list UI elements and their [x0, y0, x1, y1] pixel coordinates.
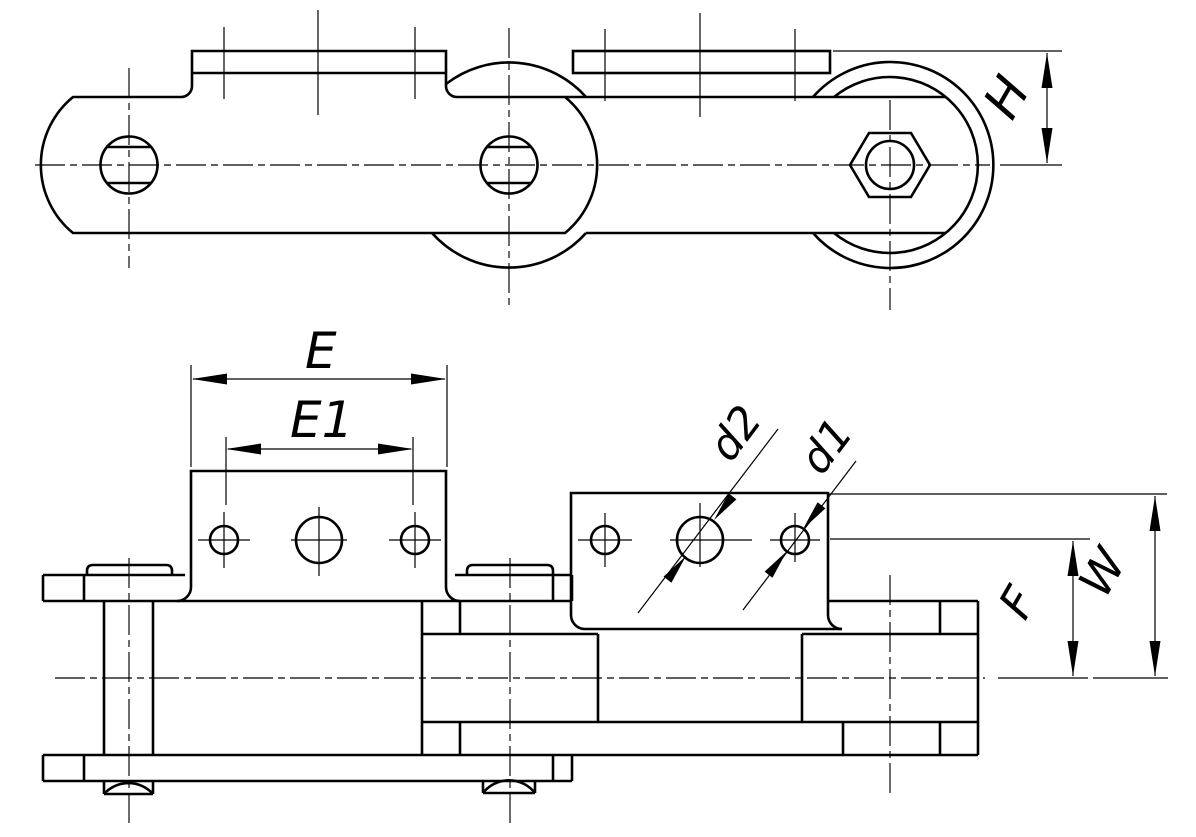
chain-plan-view: E E1 d2 [43, 322, 1168, 828]
W-arrow-down-icon [1150, 641, 1161, 676]
roller-mid-flange-top-arc [446, 62, 586, 97]
dimension-H: H [833, 51, 1062, 165]
dimension-F: F [830, 539, 1090, 678]
dim-label-F: F [988, 577, 1048, 627]
d2-arrow-lower-icon [664, 556, 686, 583]
plate-right-hole-crosshairs [578, 503, 820, 567]
W-arrow-up-icon [1150, 496, 1161, 531]
drawing-page: H E [0, 0, 1196, 837]
chain-drawing-canvas: H E [0, 0, 1196, 837]
F-arrow-down-icon [1068, 641, 1079, 676]
dimension-d2: d2 [638, 397, 778, 613]
E1-arrow-left-icon [226, 444, 261, 455]
E-arrow-left-icon [192, 374, 227, 385]
dimension-E1: E1 [226, 391, 413, 505]
chain-side-view: H [35, 10, 1062, 310]
dim-label-d1: d1 [790, 410, 863, 484]
E-arrow-right-icon [411, 374, 446, 385]
plate-left-hole-crosshairs [198, 507, 441, 576]
dim-label-E: E [305, 322, 337, 380]
d2-leader-line [638, 429, 778, 613]
H-arrow-up-icon [1042, 53, 1053, 88]
E1-arrow-right-icon [378, 444, 413, 455]
H-arrow-down-icon [1042, 128, 1053, 163]
F-arrow-up-icon [1068, 541, 1079, 576]
right-tab-outline [573, 51, 830, 73]
dim-label-d2: d2 [699, 397, 772, 471]
d1-arrow-upper-icon [803, 502, 825, 529]
d1-arrow-lower-icon [765, 551, 787, 578]
dim-label-E1: E1 [290, 391, 353, 449]
d2-arrow-upper-icon [714, 493, 736, 520]
dim-label-W: W [1068, 538, 1138, 606]
link-plate-left-outline [41, 51, 597, 233]
d1-leader-line [743, 461, 856, 610]
